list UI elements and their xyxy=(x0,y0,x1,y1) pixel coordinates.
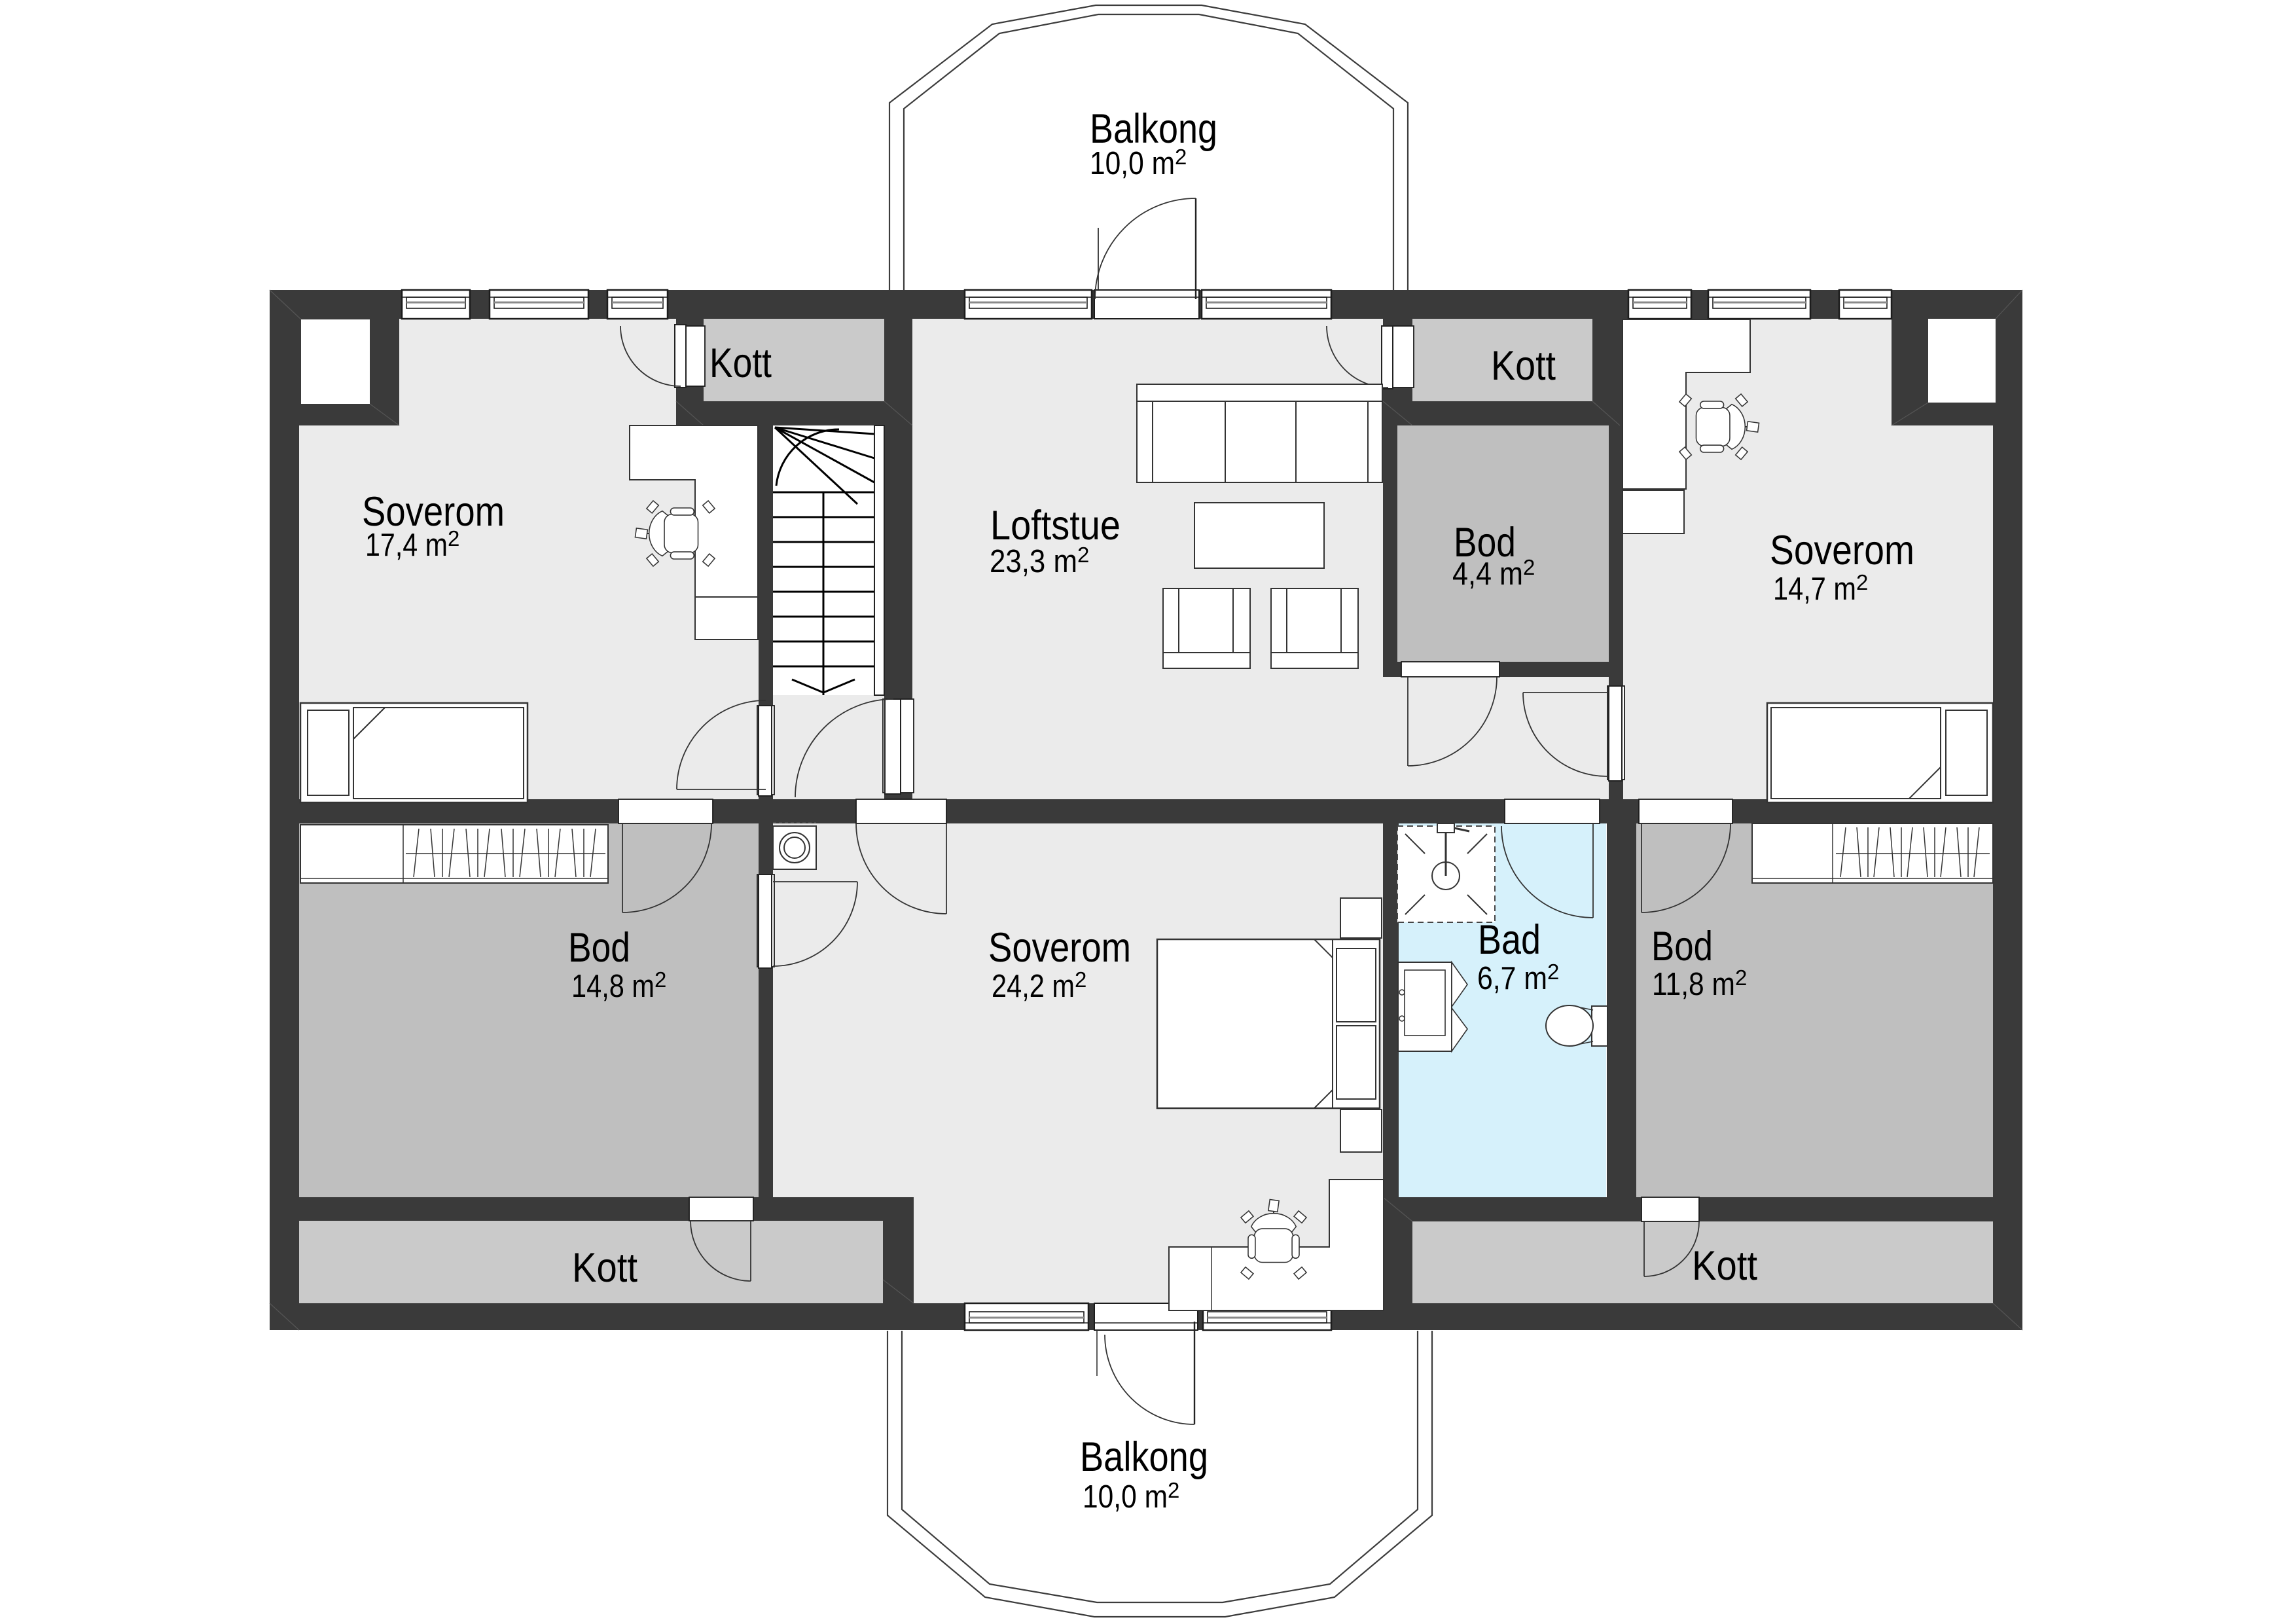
svg-text:17,4 m: 17,4 m xyxy=(365,528,448,563)
svg-text:Soverom: Soverom xyxy=(988,925,1131,971)
svg-text:2: 2 xyxy=(1547,960,1559,984)
svg-text:14,8 m: 14,8 m xyxy=(571,969,655,1004)
svg-text:2: 2 xyxy=(448,526,459,550)
svg-text:2: 2 xyxy=(1523,555,1535,579)
svg-text:Balkong: Balkong xyxy=(1080,1434,1208,1480)
svg-text:14,7 m: 14,7 m xyxy=(1773,571,1856,607)
svg-text:Bad: Bad xyxy=(1478,917,1541,963)
svg-text:Kott: Kott xyxy=(1692,1243,1757,1289)
svg-text:23,3 m: 23,3 m xyxy=(990,544,1077,579)
svg-text:2: 2 xyxy=(1075,967,1086,992)
svg-text:Kott: Kott xyxy=(709,340,772,386)
svg-text:2: 2 xyxy=(1168,1478,1179,1502)
svg-text:Bod: Bod xyxy=(568,925,630,971)
svg-text:10,0 m: 10,0 m xyxy=(1083,1479,1168,1515)
svg-text:Kott: Kott xyxy=(1491,343,1556,389)
svg-text:Balkong: Balkong xyxy=(1090,106,1217,152)
svg-text:Kott: Kott xyxy=(572,1245,637,1291)
svg-text:24,2 m: 24,2 m xyxy=(992,969,1075,1004)
svg-text:2: 2 xyxy=(1077,543,1089,567)
svg-text:11,8 m: 11,8 m xyxy=(1652,967,1735,1002)
svg-text:2: 2 xyxy=(655,967,666,992)
svg-text:Bod: Bod xyxy=(1651,924,1713,969)
svg-text:10,0 m: 10,0 m xyxy=(1090,146,1175,181)
svg-text:Soverom: Soverom xyxy=(1770,528,1914,573)
svg-text:2: 2 xyxy=(1175,145,1187,169)
svg-text:Loftstue: Loftstue xyxy=(990,503,1121,549)
svg-text:2: 2 xyxy=(1735,965,1747,990)
svg-text:2: 2 xyxy=(1856,570,1868,594)
svg-text:6,7 m: 6,7 m xyxy=(1477,961,1547,996)
svg-text:4,4 m: 4,4 m xyxy=(1452,556,1523,592)
